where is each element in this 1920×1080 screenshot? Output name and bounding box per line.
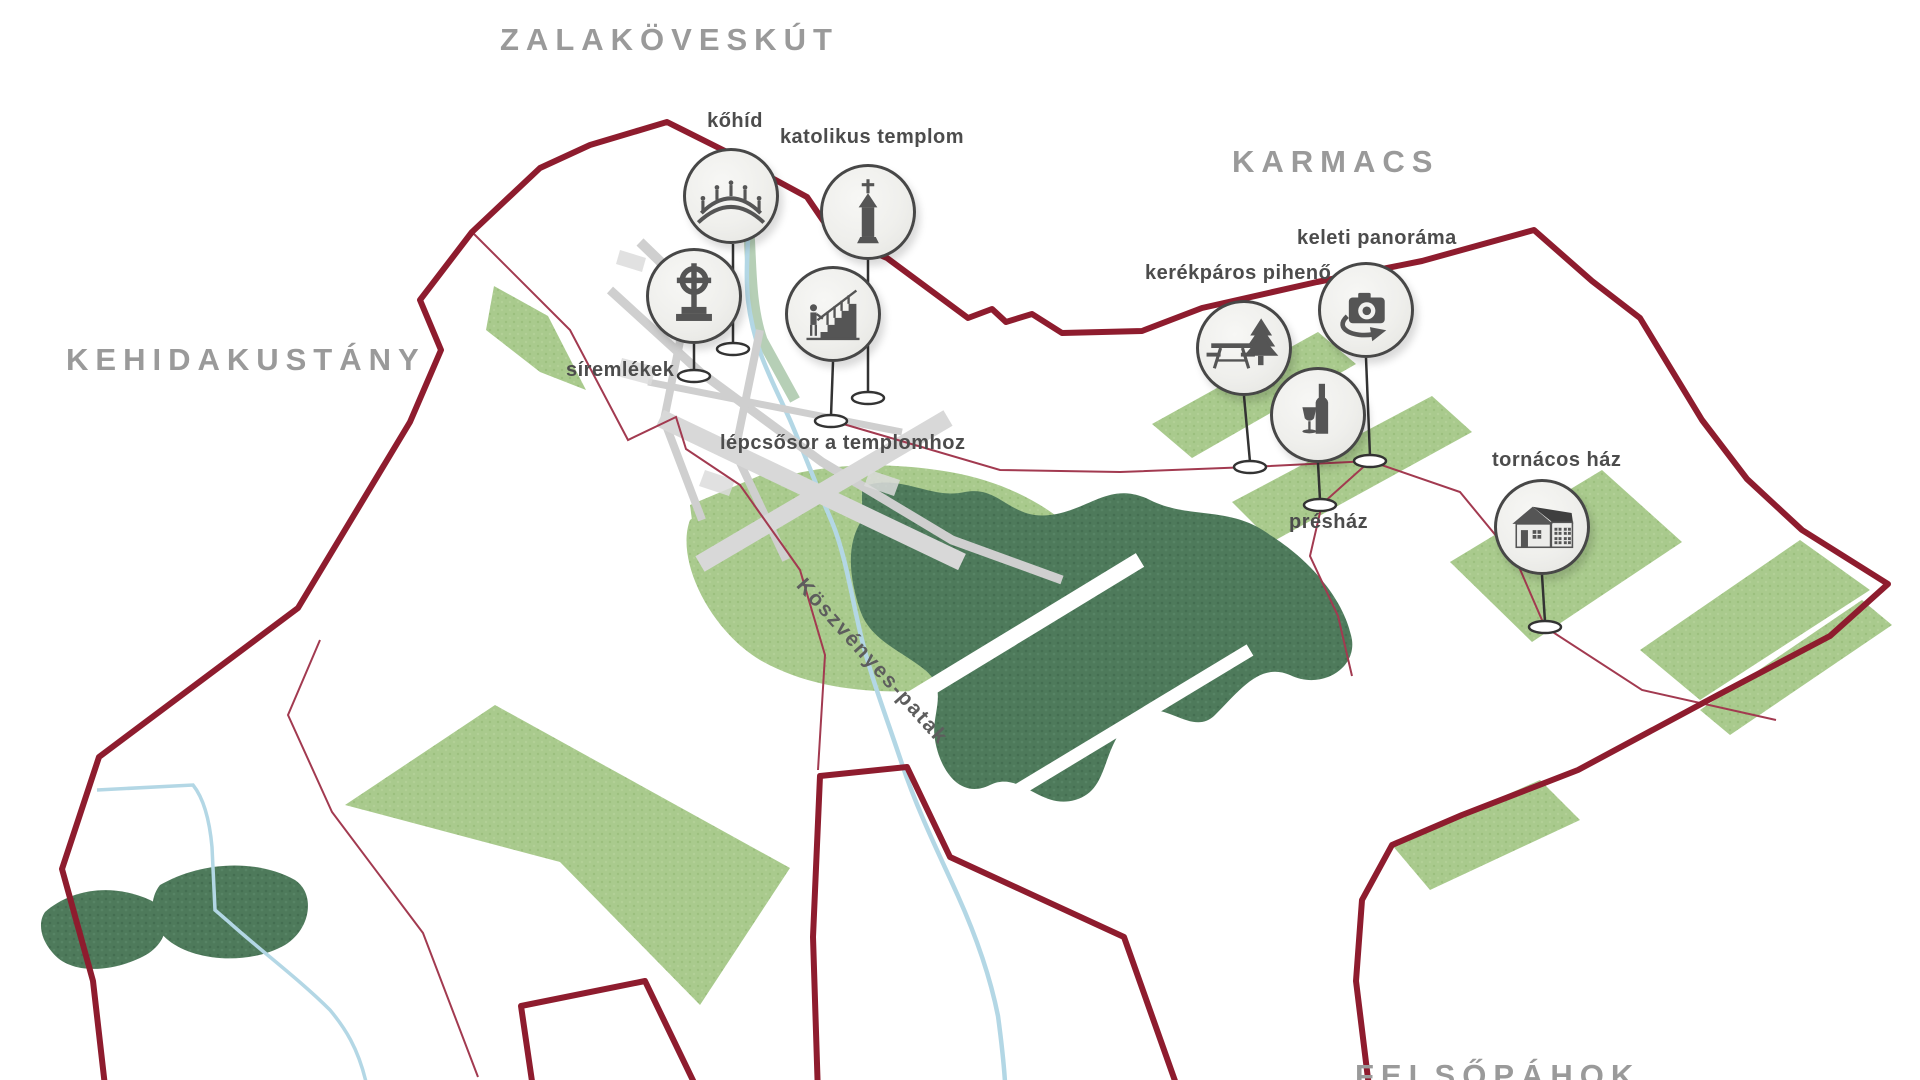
picnic-table-icon [1205,309,1283,387]
church-icon [829,173,907,251]
poi-label-preshaz: présház [1289,511,1368,534]
wine-bottle-icon [1279,376,1357,454]
panorama-camera-icon [1327,271,1405,349]
poi-label-siremlekek: síremlékek [566,359,674,382]
poi-marker-keleti-panorama[interactable] [1318,262,1414,358]
poi-label-lepcsosor: lépcsősor a templomhoz [720,432,966,455]
settlement-label-karmacs: KARMACS [1232,144,1439,180]
poi-marker-katolikus-templom[interactable] [820,164,916,260]
poi-marker-kohid[interactable] [683,148,779,244]
stone-bridge-icon [692,157,770,235]
poi-marker-siremlekek[interactable] [646,248,742,344]
poi-label-kerekparos-piheno: kerékpáros pihenő [1145,262,1331,285]
poi-label-katolikus-templom: katolikus templom [762,126,982,149]
grave-cross-icon [655,257,733,335]
poi-label-tornacos-haz: tornácos ház [1492,449,1621,472]
map-canvas [0,0,1920,1080]
porch-house-icon [1503,488,1581,566]
stairs-icon [794,275,872,353]
poi-marker-tornacos-haz[interactable] [1494,479,1590,575]
poi-marker-kerekparos-piheno[interactable] [1196,300,1292,396]
settlement-label-zalakoveskut: ZALAKÖVESKÚT [500,22,839,58]
municipality-map: ZALAKÖVESKÚT KEHIDAKUSTÁNY KARMACS FELSŐ… [0,0,1920,1080]
settlement-label-kehidakustany: KEHIDAKUSTÁNY [66,342,426,378]
poi-label-keleti-panorama: keleti panoráma [1297,227,1457,250]
poi-marker-lepcsosor[interactable] [785,266,881,362]
poi-marker-preshaz[interactable] [1270,367,1366,463]
settlement-label-felsopahok: FELSŐPÁHOK [1355,1058,1640,1080]
